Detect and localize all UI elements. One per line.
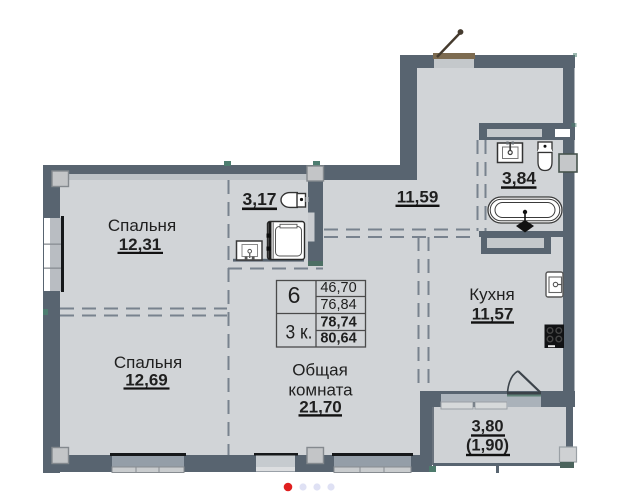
svg-text:3,84: 3,84 [502,168,536,188]
svg-text:46,70: 46,70 [320,280,356,296]
svg-text:(1,90): (1,90) [466,437,509,455]
svg-text:12,69: 12,69 [125,371,168,390]
svg-text:3 к.: 3 к. [286,322,313,344]
svg-text:21,70: 21,70 [299,398,342,417]
svg-text:3,17: 3,17 [242,189,276,209]
svg-text:6: 6 [288,282,301,308]
svg-text:78,74: 78,74 [320,315,356,331]
svg-text:80,64: 80,64 [320,331,356,347]
svg-text:3,80: 3,80 [471,418,503,436]
svg-text:11,59: 11,59 [397,188,439,207]
svg-text:Кухня: Кухня [469,285,515,304]
svg-text:11,57: 11,57 [472,305,514,324]
svg-text:Общая: Общая [292,361,348,380]
svg-text:Спальня: Спальня [108,216,176,235]
svg-text:76,84: 76,84 [320,297,356,313]
svg-text:Спальня: Спальня [114,353,182,372]
svg-text:12,31: 12,31 [119,235,162,254]
